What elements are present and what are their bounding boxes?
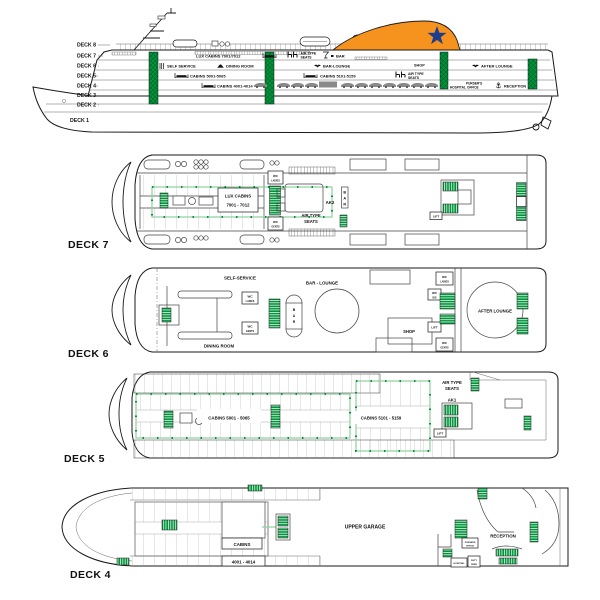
ak1-label: AK1 — [448, 398, 457, 403]
deck-label: DECK 4 — [77, 84, 96, 90]
air-seats-label: SEATS — [301, 56, 313, 60]
bar-letter: R — [343, 203, 346, 207]
stairs-icon — [517, 318, 528, 334]
stairs-icon — [149, 52, 158, 104]
deck6-plan: SELF-SERVICE BAR - LOUNGE DINING ROOM WC… — [68, 268, 546, 360]
deck-label: DECK 7 — [77, 54, 96, 60]
bar-lounge-label: BAR - LOUNGE — [306, 281, 338, 286]
air-type-seats-label: SEATS — [445, 386, 459, 391]
stairs-icon — [478, 488, 487, 499]
reception-label: RECEPTION — [504, 85, 526, 89]
stairs-icon — [162, 308, 171, 322]
cabin-grid — [130, 488, 320, 500]
air-type-seats-label: AIR TYPE — [301, 213, 321, 218]
stairs-icon — [517, 207, 527, 221]
stairs-icon — [248, 485, 262, 491]
duty-free-label: FREE — [471, 564, 477, 566]
reception-counter — [499, 558, 517, 564]
pursers-office-label: OFFICE — [466, 546, 475, 548]
cabins-5101-label: CABINS 5101-5159 — [320, 74, 356, 79]
cabins-4001-label: CABINS 4001-4014 — [217, 84, 253, 89]
deck-label: DECK 5 — [77, 74, 96, 80]
lift-shaft — [517, 197, 527, 207]
wc-ladies-label: LADIES — [246, 300, 255, 303]
bar-lounge-label: BAR-LOUNGE — [323, 64, 350, 69]
deck-label: DECK 8 — [77, 43, 96, 49]
cabins-label: CABINS — [234, 542, 251, 547]
after-lounge-label: AFTER LOUNGE — [481, 64, 513, 69]
cabins-5001-label: CABINS 5001-5065 — [190, 74, 226, 79]
lux-cabins-label: LUX CABINS — [225, 194, 251, 199]
stairs-icon — [269, 299, 280, 328]
cabin-grid — [356, 381, 430, 406]
wc-gents-label: GENTS — [440, 347, 449, 350]
wc-disabled-label: DIS — [433, 297, 437, 300]
wc-label: WC — [442, 341, 448, 345]
stairs-icon — [164, 411, 173, 428]
self-service-label: SELF-SERVICE — [224, 276, 256, 281]
wc-gents-label: GENTS — [246, 330, 255, 333]
stairs-icon — [440, 314, 455, 324]
mast — [134, 8, 176, 50]
seat-rows — [289, 229, 335, 236]
deck-label: DECK 1 — [70, 118, 89, 124]
seat-rows — [289, 167, 335, 174]
pursers-office-label: OFFICE — [467, 86, 479, 90]
bow — [109, 378, 127, 450]
truck-icon — [319, 82, 337, 88]
service-room — [180, 413, 192, 423]
stairs-icon — [528, 59, 537, 89]
ferry-deck-plan: DECK 8 DECK 7 DECK 6 DECK 5 DECK 4 DECK … — [0, 0, 600, 600]
stairs-icon — [524, 416, 531, 430]
stairs-icon — [440, 52, 448, 89]
lift-label: LIFT — [433, 215, 439, 219]
deck4-plan: CABINS 4001 - 4014 UPPER GARAGE PURSERS … — [62, 485, 568, 581]
deck7-title: DECK 7 — [68, 239, 109, 251]
bar-letter: A — [343, 197, 346, 201]
stairs-icon — [517, 293, 528, 309]
reception-label: RECEPTION — [490, 534, 516, 539]
lift-shaft — [458, 190, 471, 204]
duty-free-label: DUTY — [471, 560, 477, 562]
stairs-icon — [265, 52, 274, 104]
deck7-plan: LUX CABINS 7001 - 7012 WC LADIES WC GENT… — [68, 155, 546, 251]
shop-label: SHOP — [414, 64, 425, 68]
ak2-label: AK2 — [326, 200, 335, 205]
bar-label: BAR — [336, 54, 345, 59]
stairs-icon — [278, 528, 288, 538]
bar-counter: B A R — [286, 295, 302, 337]
deck-label: DECK 3 — [77, 93, 96, 99]
cabins-5101-label: CABINS 5101 - 5159 — [361, 416, 402, 421]
shop-label: SHOP — [403, 329, 415, 334]
stairs-icon — [270, 186, 281, 215]
deck5-title: DECK 5 — [64, 453, 105, 465]
cabins-range-label: 4001 - 4014 — [232, 560, 256, 565]
self-service-label: SELF SERVICE — [167, 64, 196, 69]
wc-label: WC — [273, 174, 279, 178]
deck-label: DECK 2 — [77, 103, 96, 109]
hospital-label: HOSPITAL — [450, 86, 466, 90]
cabin-grid — [136, 394, 350, 410]
service-room — [173, 196, 185, 205]
after-lounge-label: AFTER LOUNGE — [478, 309, 512, 314]
air-type-seats-label: AIR TYPE — [442, 380, 462, 385]
stairs-icon — [117, 558, 129, 565]
stairs-icon — [443, 204, 458, 213]
lux-cabins-label-box — [218, 188, 258, 212]
wc-label: WC — [248, 295, 254, 299]
stairs-icon — [517, 183, 527, 197]
stairs-icon — [162, 520, 177, 530]
deck6-title: DECK 6 — [68, 348, 109, 360]
wc-gents-label: GENTS — [271, 226, 280, 229]
stairs-icon — [444, 405, 458, 415]
lift-label: LIFT — [437, 432, 443, 436]
stairs-icon — [278, 516, 288, 526]
stairs-icon — [444, 417, 458, 427]
stairs-icon — [455, 520, 467, 538]
stairs-icon — [443, 549, 452, 557]
bridge-windows — [112, 52, 136, 55]
wc-label: WC — [248, 325, 254, 329]
bow — [112, 275, 131, 345]
wc-ladies-label: LADIES — [271, 180, 280, 183]
wc-label: WC — [273, 220, 279, 224]
dining-room-label: DINING ROOM — [226, 64, 254, 69]
cabins-5001-label: CABINS 5001 - 5065 — [208, 416, 250, 421]
open-room — [222, 502, 265, 538]
stairs-icon — [160, 193, 168, 208]
deck5-plan: CABINS 5001 - 5065 CABINS 5101 - 5159 AI… — [64, 372, 558, 465]
stairs-icon — [340, 215, 347, 227]
dining-room-label: DINING ROOM — [204, 344, 235, 349]
wc-label: WC — [432, 291, 438, 295]
stairs-icon — [530, 522, 538, 542]
pursers-office-label: PURSERS — [465, 542, 476, 544]
upper-garage-label: UPPER GARAGE — [345, 525, 386, 531]
air-seats-label: SEATS — [408, 76, 420, 80]
cabin-grid — [134, 374, 380, 393]
lux-cabins-range: 7001 - 7012 — [227, 203, 251, 208]
window-band — [355, 57, 387, 60]
deck-label: DECK 6 — [77, 64, 96, 70]
ship-profile: DECK 8 DECK 7 DECK 6 DECK 5 DECK 4 DECK … — [33, 8, 558, 133]
lift-label: LIFT — [431, 326, 437, 330]
reception-counter — [496, 549, 518, 556]
deck4-title: DECK 4 — [70, 569, 111, 581]
bar-stool-icon — [331, 55, 334, 57]
wc-label: WC — [442, 275, 448, 279]
lux-cabins-label: LUX CABINS 7001/7012 — [196, 54, 241, 59]
service-room — [199, 197, 213, 205]
stairs-icon — [471, 378, 479, 391]
cabin-grid — [356, 428, 430, 451]
stairs-icon — [271, 405, 280, 428]
stairs-icon — [440, 293, 455, 309]
air-type-seats-label: SEATS — [304, 219, 318, 224]
bow — [112, 162, 131, 242]
stairs-icon — [443, 182, 458, 191]
wc-ladies-label: LADIES — [440, 281, 449, 284]
hospital-label: HOSPITAL — [454, 562, 466, 565]
bar-letter: B — [343, 191, 346, 195]
